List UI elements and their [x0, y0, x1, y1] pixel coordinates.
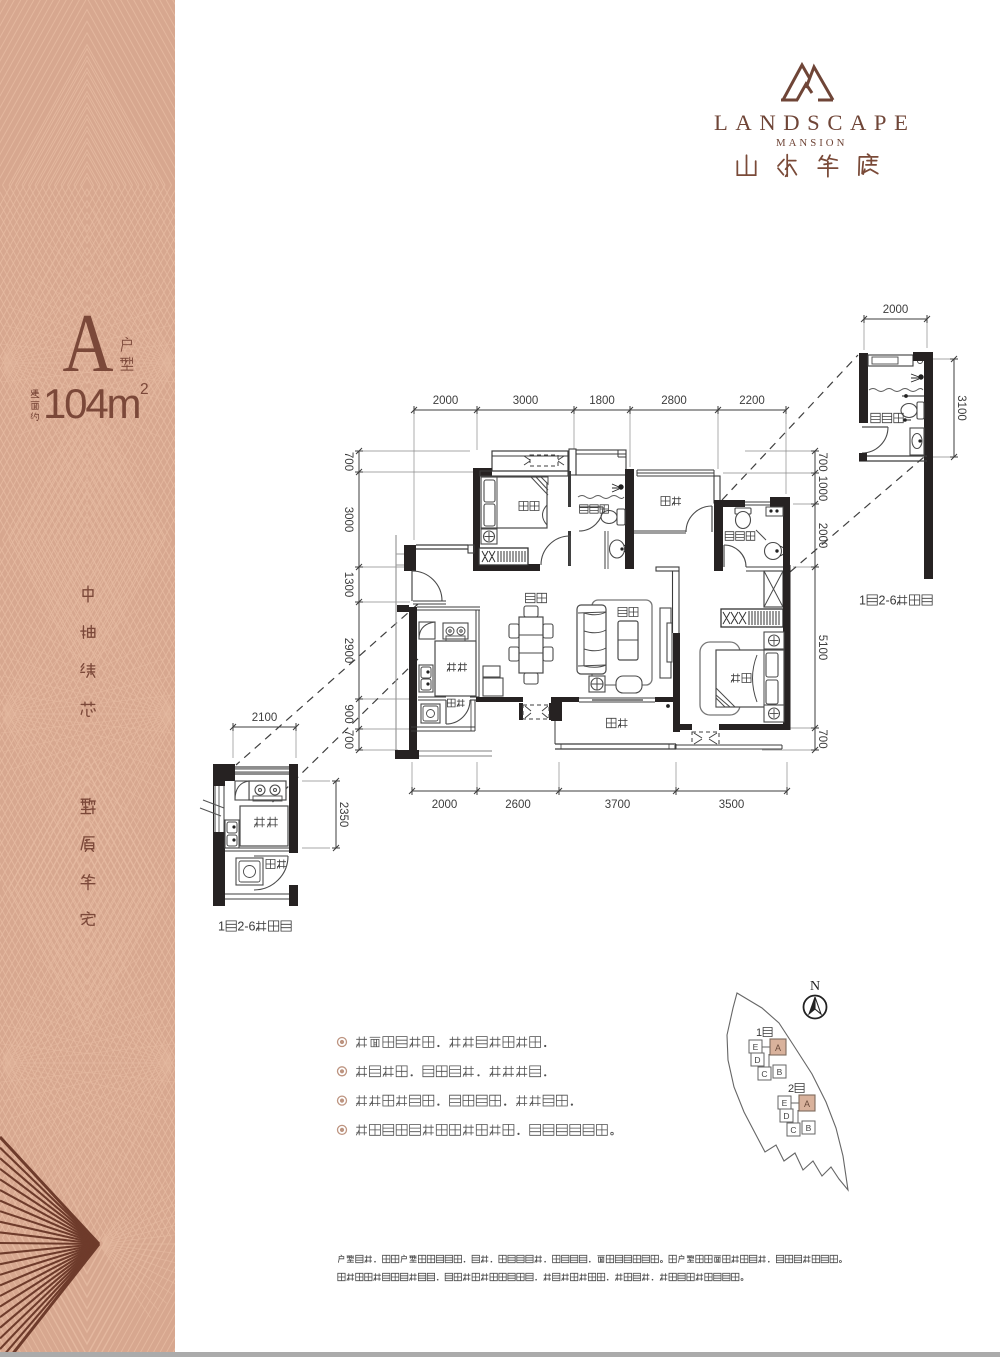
svg-text:2900: 2900 [342, 638, 354, 664]
svg-text:3000: 3000 [513, 395, 539, 407]
svg-text:D: D [783, 1111, 789, 1121]
svg-text:2000: 2000 [432, 799, 458, 811]
svg-text:700: 700 [816, 452, 828, 471]
svg-text:2600: 2600 [505, 799, 531, 811]
svg-text:A: A [804, 1099, 810, 1109]
svg-text:1: 1 [859, 593, 866, 607]
svg-text:C: C [790, 1125, 796, 1135]
svg-text:700: 700 [342, 452, 354, 471]
svg-text:N: N [810, 979, 820, 994]
svg-text:1000: 1000 [816, 476, 828, 502]
svg-text:1300: 1300 [342, 572, 354, 598]
svg-text:2350: 2350 [337, 802, 349, 828]
svg-text:D: D [754, 1055, 760, 1065]
svg-text:2: 2 [140, 381, 149, 398]
svg-text:E: E [753, 1042, 759, 1052]
svg-text:LANDSCAPE: LANDSCAPE [714, 110, 915, 135]
svg-text:900: 900 [342, 704, 354, 723]
svg-text:2-6: 2-6 [879, 593, 897, 607]
svg-text:2000: 2000 [433, 395, 459, 407]
svg-text:2200: 2200 [739, 395, 765, 407]
svg-text:2800: 2800 [661, 395, 687, 407]
svg-text:2-6: 2-6 [237, 919, 255, 933]
svg-text:3100: 3100 [955, 395, 967, 421]
svg-text:MANSION: MANSION [776, 137, 847, 149]
svg-text:1: 1 [756, 1027, 762, 1039]
svg-text:B: B [777, 1067, 783, 1077]
svg-text:3000: 3000 [342, 507, 354, 533]
svg-text:5100: 5100 [816, 635, 828, 661]
svg-text:1800: 1800 [589, 395, 615, 407]
svg-text:1: 1 [218, 919, 225, 933]
svg-text:2000: 2000 [883, 304, 909, 316]
svg-text:A: A [775, 1043, 781, 1053]
svg-text:1栋: 1栋 [0, 0, 1, 1]
svg-text:2100: 2100 [252, 712, 278, 724]
svg-text:700: 700 [816, 729, 828, 748]
svg-text:C: C [761, 1069, 767, 1079]
svg-text:3500: 3500 [719, 799, 745, 811]
svg-text:2: 2 [788, 1083, 794, 1095]
svg-text:3700: 3700 [605, 799, 631, 811]
svg-text:E: E [782, 1098, 788, 1108]
svg-text:A: A [63, 296, 114, 389]
svg-text:104m: 104m [43, 380, 139, 427]
svg-text:B: B [806, 1123, 812, 1133]
